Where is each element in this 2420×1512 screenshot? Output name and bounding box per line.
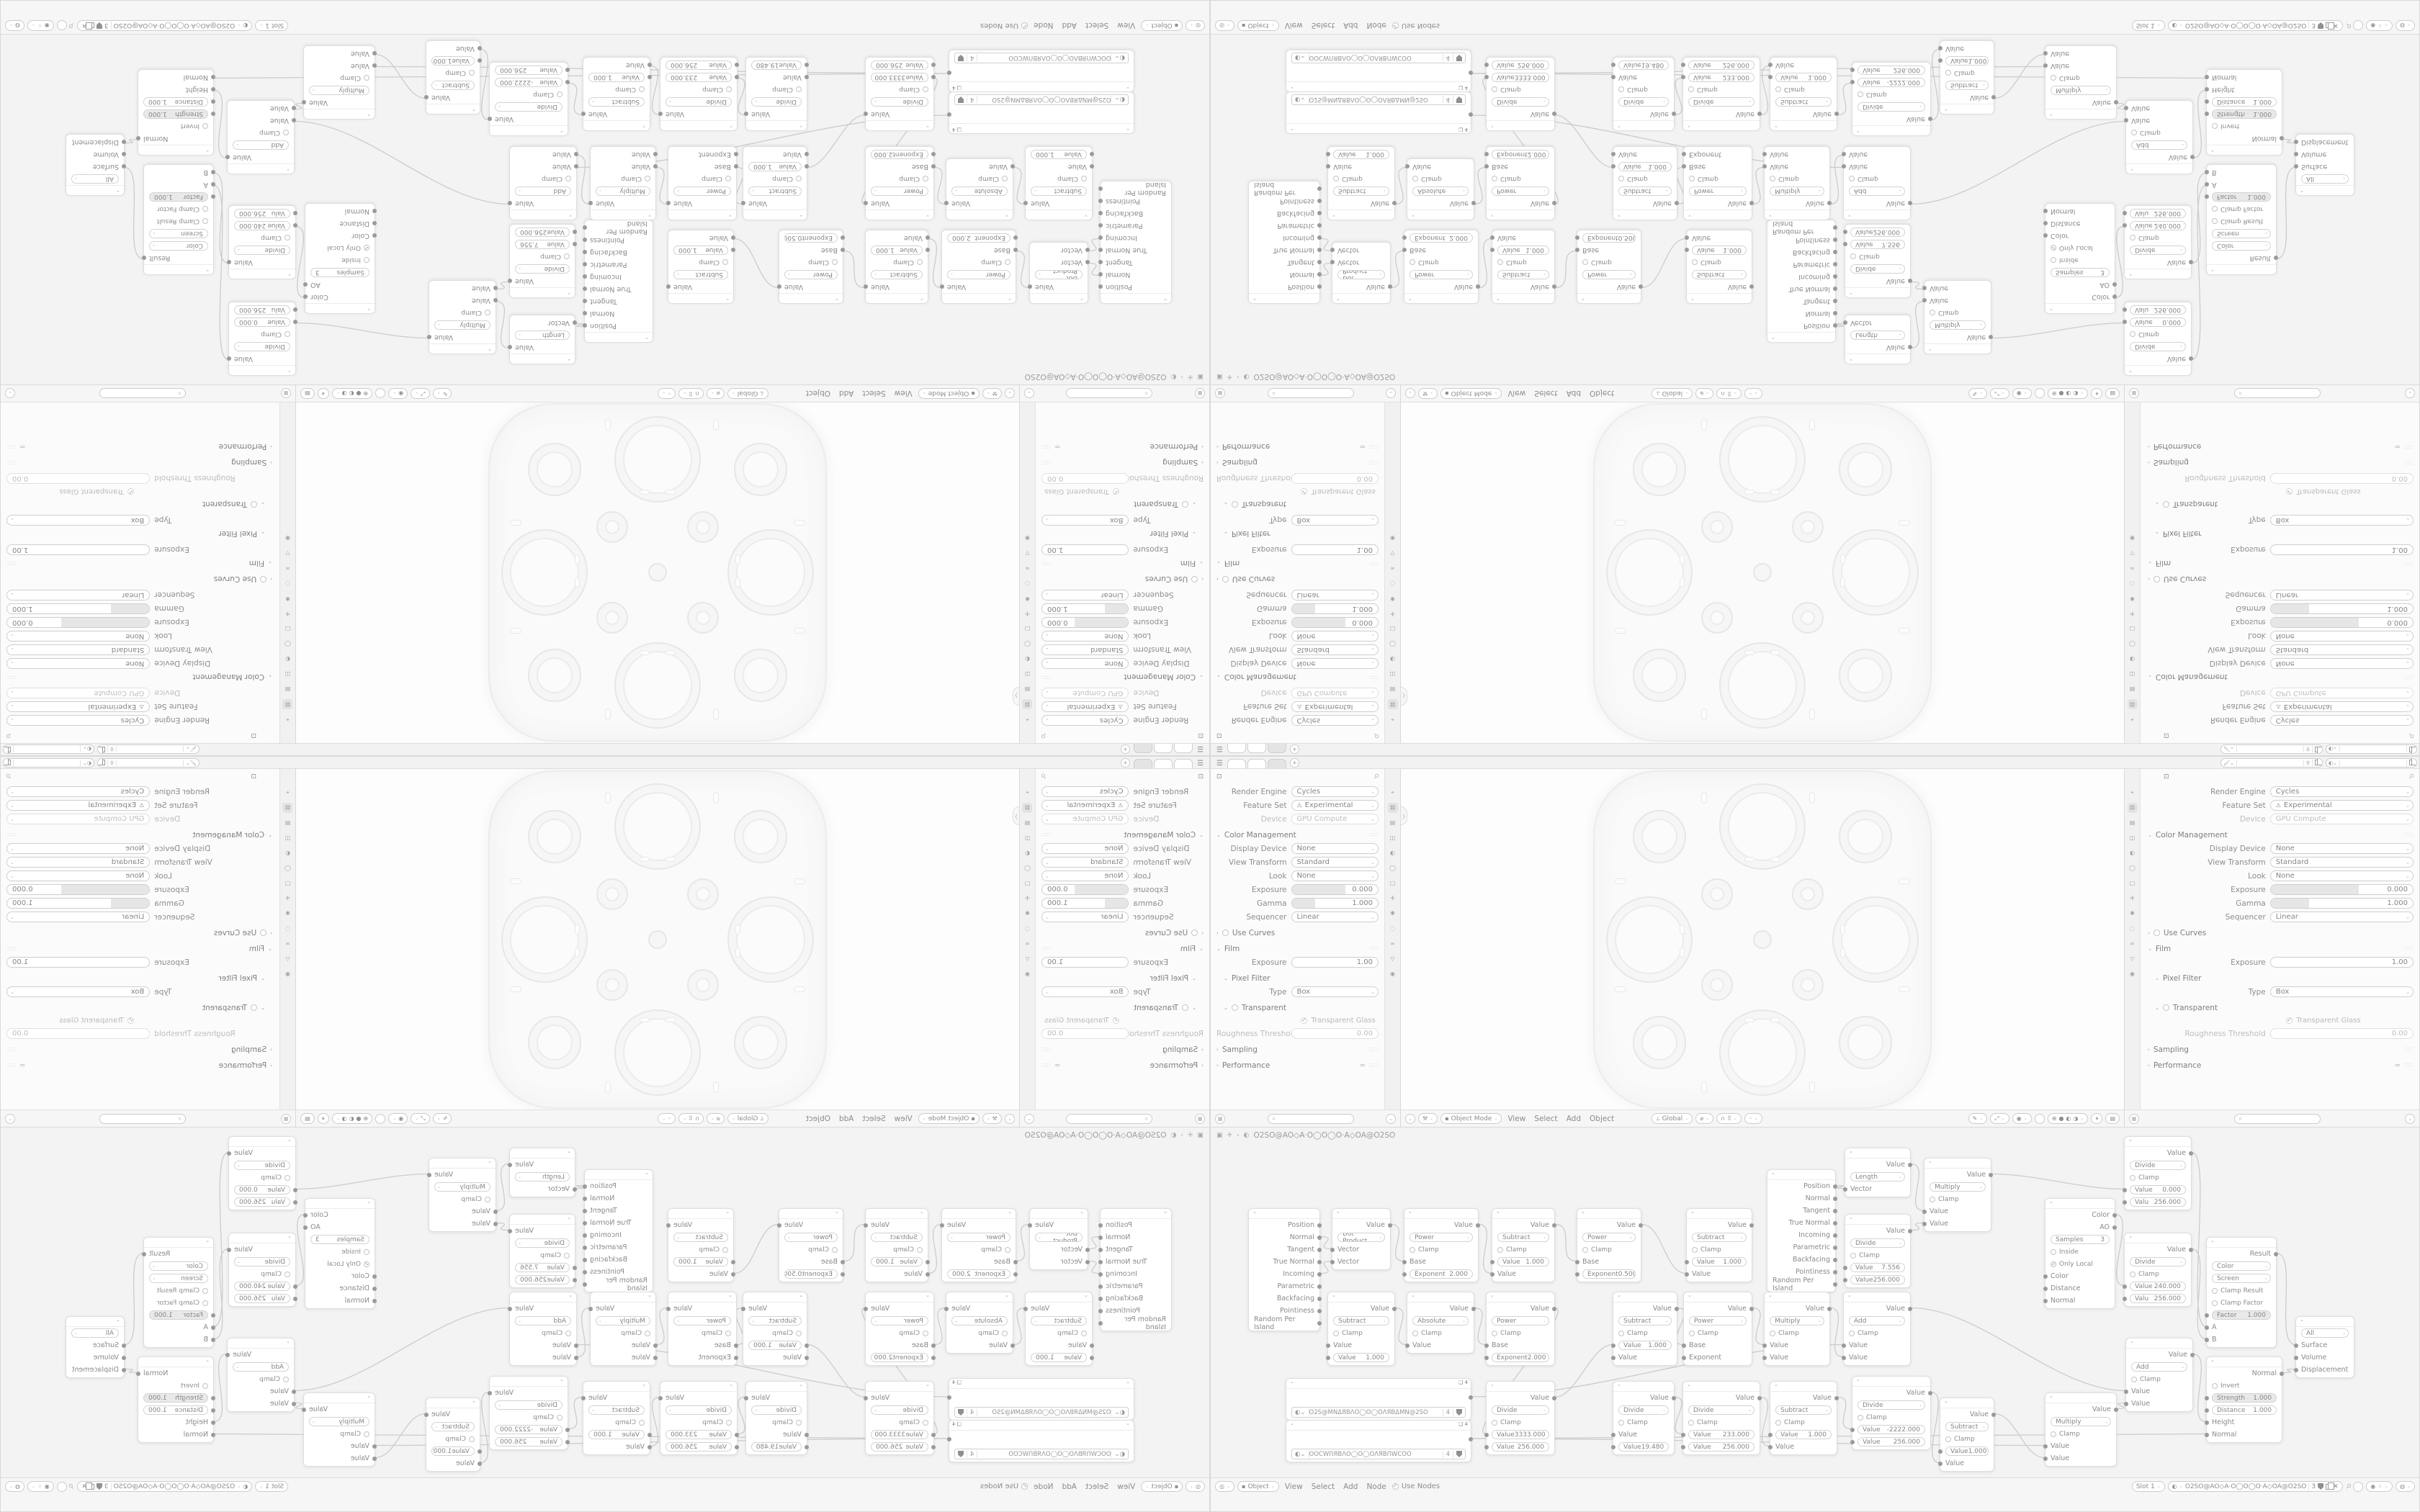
- overlays-toggle-button[interactable]: ◉⌄: [388, 388, 408, 399]
- gizmo-toggle-button[interactable]: ⤢⌄: [1990, 1113, 2009, 1124]
- input-socket[interactable]: [647, 1445, 652, 1449]
- snap-target-button[interactable]: ⌀⌄: [1695, 1113, 1713, 1124]
- proportional-edit-button[interactable]: ◦⌄: [658, 1113, 676, 1124]
- node-checkbox[interactable]: [564, 254, 570, 260]
- input-exposure[interactable]: 0.000: [1291, 884, 1379, 895]
- input-socket[interactable]: [292, 119, 296, 123]
- node-operation-select[interactable]: Add⌄: [515, 1316, 571, 1326]
- node-checkbox[interactable]: [832, 1247, 838, 1253]
- user-count-badge[interactable]: 4: [967, 96, 977, 104]
- search-input[interactable]: ⌕: [2234, 1114, 2321, 1124]
- output-socket[interactable]: [583, 1197, 587, 1201]
- input-socket[interactable]: [1681, 76, 1685, 80]
- snap-toggle-empty[interactable]: [57, 21, 67, 31]
- workspace-tab-active[interactable]: [1134, 744, 1152, 753]
- node-value-field[interactable]: Valu256.000: [234, 1197, 290, 1207]
- node-checkbox[interactable]: [1492, 87, 1497, 93]
- node-math[interactable]: ValueDivide⌄ClampValue240.000Valu256.000: [2124, 205, 2192, 279]
- output-socket[interactable]: [2112, 295, 2117, 300]
- node-bump[interactable]: NormalInvertStrength1.000Distance1.000He…: [138, 1356, 214, 1443]
- node-header[interactable]: [1844, 1292, 1910, 1302]
- props-scene-icon[interactable]: ◐: [2128, 848, 2138, 858]
- node-operation-select[interactable]: Divide⌄: [2130, 246, 2186, 255]
- node-header[interactable]: [946, 1292, 1013, 1302]
- node-checkbox[interactable]: [1497, 1247, 1503, 1253]
- node-checkbox[interactable]: [1412, 1331, 1418, 1336]
- output-socket[interactable]: [741, 1307, 745, 1311]
- viewport-3d[interactable]: ❭ ⌄ ⚒⌄ ▪Object Mode⌄ View Select Add Obj…: [1401, 769, 2124, 1127]
- node-math[interactable]: ValueSubtract⌄ClampValueValue1.000: [1025, 146, 1093, 220]
- use-nodes-checkbox[interactable]: [1392, 1483, 1399, 1490]
- output-socket[interactable]: [142, 256, 146, 261]
- input-roughness-threshold[interactable]: 0.00: [2270, 473, 2414, 484]
- output-socket[interactable]: [1834, 1396, 1839, 1400]
- output-socket[interactable]: [227, 1151, 231, 1156]
- props-scene-icon[interactable]: ◐: [1388, 848, 1398, 858]
- node-math[interactable]: ValueDivide⌄ClampValue-2222.000Value256.…: [489, 62, 568, 136]
- section-film[interactable]: ⌄Film∷∷: [2142, 557, 2419, 570]
- input-socket[interactable]: [478, 1449, 482, 1454]
- node-math[interactable]: ValueDivide⌄ClampValue3333.000Value256.0…: [865, 1381, 934, 1455]
- node-header[interactable]: [229, 269, 295, 279]
- select-display-device[interactable]: None⌄: [6, 843, 150, 854]
- viewport-canvas[interactable]: ❭: [296, 769, 1019, 1110]
- select-view-transform[interactable]: Standard⌄: [2270, 644, 2414, 655]
- select-look[interactable]: None⌄: [1041, 870, 1129, 881]
- node-value-field[interactable]: Value233.000: [665, 73, 732, 82]
- pause-render-button[interactable]: ⏸: [318, 1113, 329, 1124]
- props-data-icon[interactable]: ▽: [283, 954, 293, 964]
- node-math[interactable]: ValueDivide⌄ClampValue0.000Valu256.000: [228, 1136, 296, 1210]
- section-use-curves[interactable]: ›Use Curves: [1036, 926, 1209, 940]
- search-input[interactable]: ⌕: [1067, 1114, 1153, 1124]
- input-socket[interactable]: [2043, 222, 2048, 226]
- node-header[interactable]: [942, 293, 1016, 303]
- section-sampling[interactable]: ›Sampling∷∷: [1036, 1043, 1209, 1056]
- menu-icon[interactable]: ☰: [1197, 760, 1204, 768]
- node-node-group[interactable]: ❑ 4◐⌄O2S@MNΔЯBΛO◯O◯OΛЯBΔMN@2SO4: [949, 91, 1134, 134]
- input-socket[interactable]: [731, 236, 735, 240]
- node-value-field[interactable]: Exponent2.000: [1492, 1353, 1549, 1362]
- input-socket[interactable]: [1922, 1210, 1927, 1214]
- section-checkbox[interactable]: [2154, 930, 2160, 936]
- output-socket[interactable]: [1834, 112, 1839, 117]
- section-transparent[interactable]: ⌄Transparent: [1211, 498, 1384, 511]
- node-header[interactable]: [2045, 1199, 2115, 1209]
- node-math[interactable]: ValueDivide⌄ClampValueValue19.480: [745, 57, 807, 131]
- node-header[interactable]: ❑ 4: [1286, 1421, 1471, 1431]
- copy-icon[interactable]: [4, 746, 14, 753]
- orientation-select[interactable]: ⟂Global⌄: [727, 1113, 768, 1124]
- node-header[interactable]: [2045, 303, 2115, 313]
- props-particles-icon[interactable]: ✱: [1388, 593, 1398, 603]
- node-checkbox[interactable]: [2131, 130, 2137, 136]
- editor-chevron-button[interactable]: ⌄: [1405, 389, 1415, 399]
- select-device[interactable]: GPU Compute⌄: [1041, 688, 1129, 698]
- section-use-curves[interactable]: ›Use Curves: [1036, 572, 1209, 586]
- node-header[interactable]: [2296, 1317, 2354, 1327]
- input-gamma[interactable]: 1.000: [1291, 603, 1379, 614]
- material-datablock[interactable]: ◐⌄ O2SO@AO◇A·O◯O◯O·A◇OA@O2SO 3 ✕: [2168, 20, 2343, 31]
- node-math[interactable]: ValueSubtract⌄ClampValueValue1.000: [1327, 1292, 1395, 1366]
- output-socket[interactable]: [588, 202, 593, 206]
- node-value-field[interactable]: Value1.000: [1775, 73, 1832, 82]
- node-value-field[interactable]: Value-2222.000: [1857, 1425, 1925, 1434]
- output-socket[interactable]: [508, 279, 512, 284]
- output-socket[interactable]: [1552, 112, 1556, 117]
- input-socket[interactable]: [734, 153, 738, 157]
- output-socket[interactable]: [1098, 187, 1103, 192]
- pin-icon[interactable]: ⚲: [68, 22, 76, 30]
- input-socket[interactable]: [1842, 153, 1846, 157]
- node-math[interactable]: ValueMultiply⌄ClampValueValue: [429, 280, 496, 354]
- section-checkbox[interactable]: [2163, 1004, 2169, 1011]
- menu-object[interactable]: Object: [803, 1115, 833, 1123]
- node-header[interactable]: [510, 210, 576, 220]
- node-value-field[interactable]: Exponent2.000: [1410, 233, 1473, 243]
- section-transparent[interactable]: ⌄Transparent: [2142, 1001, 2419, 1014]
- output-socket[interactable]: [1317, 1260, 1322, 1264]
- node-operation-select[interactable]: Subtract⌄: [871, 270, 923, 279]
- node-header[interactable]: [229, 365, 295, 375]
- use-nodes-checkbox[interactable]: [1021, 1483, 1028, 1490]
- node-checkbox[interactable]: [284, 235, 290, 241]
- snap-magnet-button[interactable]: ∩⠿⌄: [1716, 1113, 1742, 1124]
- node-checkbox[interactable]: [2212, 1288, 2218, 1294]
- output-socket[interactable]: [583, 275, 587, 279]
- output-socket[interactable]: [744, 1396, 748, 1400]
- view-layer-field[interactable]: [14, 759, 80, 767]
- node-math[interactable]: ValueDivide⌄ClampValue-2222.000Value256.…: [1852, 1376, 1931, 1450]
- node-math[interactable]: ValueMultiply⌄ClampValueValue: [590, 1292, 656, 1366]
- section-use-curves[interactable]: ›Use Curves: [1, 572, 278, 586]
- node-header[interactable]: [2125, 269, 2191, 279]
- node-operation-select[interactable]: Divide⌄: [1618, 1405, 1669, 1415]
- node-value-field[interactable]: Exponent0.500: [784, 1269, 838, 1279]
- output-socket[interactable]: [1098, 236, 1103, 240]
- menu-node[interactable]: Node: [1031, 22, 1056, 30]
- input-roughness-threshold[interactable]: 0.00: [1291, 473, 1379, 484]
- input-socket[interactable]: [122, 165, 126, 169]
- output-socket[interactable]: [1749, 1223, 1754, 1228]
- node-math[interactable]: ValueMultiply⌄ClampValueValue: [1764, 1292, 1830, 1366]
- output-socket[interactable]: [1098, 1321, 1103, 1326]
- node-math[interactable]: ValuePower⌄ClampBaseExponent2.000: [1404, 230, 1479, 304]
- node-header[interactable]: [228, 163, 294, 174]
- node-header[interactable]: [1328, 210, 1394, 220]
- output-socket[interactable]: [1827, 1307, 1832, 1311]
- node-math[interactable]: ValuePower⌄ClampBaseExponent0.500: [1577, 230, 1641, 304]
- snap-magnet-button[interactable]: ∩⠿⌄: [1716, 388, 1742, 399]
- output-socket[interactable]: [777, 1223, 781, 1228]
- pause-render-button[interactable]: ⏸: [318, 388, 329, 399]
- select-device[interactable]: GPU Compute⌄: [1291, 688, 1379, 698]
- select-display-device[interactable]: None⌄: [1041, 843, 1129, 854]
- node-value-field[interactable]: Value0.000: [2130, 1185, 2186, 1194]
- section-color-management[interactable]: ⌄Color Management∷∷: [1, 670, 278, 684]
- output-socket[interactable]: [1469, 1437, 1473, 1441]
- node-operation-select[interactable]: Divide⌄: [2130, 1257, 2186, 1266]
- material-datablock[interactable]: ◐⌄ O2SO@AO◇A·O◯O◯O·A◇OA@O2SO 3 ✕: [77, 20, 252, 31]
- output-socket[interactable]: [2112, 1225, 2117, 1230]
- input-socket[interactable]: [1330, 1260, 1335, 1264]
- node-operation-select[interactable]: Divide⌄: [1618, 97, 1669, 107]
- output-socket[interactable]: [1833, 1233, 1837, 1238]
- node-value-field[interactable]: Value1.000: [1333, 150, 1389, 159]
- select-look[interactable]: None⌄: [1291, 870, 1379, 881]
- node-math[interactable]: ValueDivide⌄ClampValue0.000Valu256.000: [2124, 1136, 2192, 1210]
- section-checkbox[interactable]: [260, 576, 266, 582]
- node-checkbox[interactable]: [469, 71, 475, 76]
- node-operation-select[interactable]: Divide⌄: [234, 342, 290, 351]
- output-socket[interactable]: [227, 1248, 231, 1252]
- output-socket[interactable]: [583, 1209, 587, 1213]
- input-socket[interactable]: [1085, 261, 1090, 265]
- node-node-group[interactable]: ❑ 4◐⌄O2S@MNΔЯBΛO◯O◯OΛЯBΔMN@2SO4: [1286, 1378, 1471, 1421]
- node-checkbox[interactable]: [2130, 1175, 2136, 1181]
- input-socket[interactable]: [1850, 1440, 1855, 1444]
- input-socket[interactable]: [1681, 63, 1685, 68]
- node-header[interactable]: [1852, 125, 1930, 135]
- output-socket[interactable]: [947, 71, 951, 75]
- proportional-edit-button[interactable]: ◦⌄: [1744, 1113, 1762, 1124]
- viewport-canvas[interactable]: ❭: [1401, 402, 2124, 743]
- node-header[interactable]: [1767, 1170, 1835, 1180]
- node-header[interactable]: [144, 264, 213, 274]
- node-header[interactable]: ❑ 4: [949, 1379, 1134, 1389]
- input-socket[interactable]: [574, 1344, 578, 1348]
- output-socket[interactable]: [583, 238, 587, 243]
- input-socket[interactable]: [565, 1428, 570, 1432]
- use-nodes-checkbox[interactable]: [1021, 22, 1028, 29]
- select-feature-set[interactable]: ⚠Experimental⌄: [1291, 701, 1379, 712]
- input-socket[interactable]: [2205, 1396, 2209, 1400]
- node-value-field[interactable]: Valu256.000: [234, 305, 290, 315]
- node-checkbox[interactable]: [1081, 176, 1087, 182]
- node-value-field[interactable]: Value0.000: [2130, 318, 2186, 327]
- node-header[interactable]: [510, 1292, 576, 1302]
- options-chevron-button[interactable]: ⌄: [2405, 389, 2415, 399]
- input-socket[interactable]: [1402, 248, 1407, 253]
- node-math[interactable]: ValuePower⌄ClampBaseExponent: [668, 146, 737, 220]
- output-socket[interactable]: [2280, 1372, 2284, 1376]
- node-operation-select[interactable]: Divide⌄: [1857, 102, 1925, 112]
- node-operation-select[interactable]: Subtract⌄: [1692, 1233, 1747, 1242]
- input-gamma[interactable]: 1.000: [2270, 898, 2414, 909]
- output-socket[interactable]: [583, 226, 587, 230]
- node-header[interactable]: [2125, 1233, 2191, 1243]
- node-header[interactable]: [1328, 1292, 1394, 1302]
- select-sequencer[interactable]: Linear⌄: [1041, 590, 1129, 600]
- output-socket[interactable]: [1833, 1209, 1837, 1213]
- input-socket[interactable]: [931, 1445, 936, 1449]
- input-socket[interactable]: [1768, 1445, 1773, 1449]
- props-world-icon[interactable]: ◯: [283, 639, 293, 649]
- node-checkbox[interactable]: [202, 1300, 208, 1306]
- overlays-toggle-button[interactable]: ◉⌄: [2012, 1113, 2032, 1124]
- node-math[interactable]: ValueSubtract⌄ClampValue1.000Value: [1940, 1398, 1994, 1472]
- section-film[interactable]: ⌄Film∷∷: [1211, 557, 1384, 570]
- select-render-engine[interactable]: Cycles⌄: [1291, 715, 1379, 726]
- options-chevron-button[interactable]: ⌄: [2405, 1114, 2415, 1124]
- node-value-field[interactable]: Value256.000: [1850, 228, 1905, 237]
- select-device[interactable]: GPU Compute⌄: [2270, 688, 2414, 698]
- section-checkbox[interactable]: [251, 1004, 257, 1011]
- checkbox-transparent-glass[interactable]: Transparent Glass: [1, 485, 278, 498]
- output-socket[interactable]: [1908, 1163, 1912, 1167]
- node-checkbox[interactable]: [1850, 254, 1856, 260]
- input-socket[interactable]: [1938, 1449, 1942, 1454]
- snap-toggle-empty[interactable]: [2353, 1482, 2363, 1492]
- node-checkbox[interactable]: [1618, 1420, 1624, 1426]
- input-socket[interactable]: [372, 222, 377, 226]
- node-checkbox[interactable]: [1005, 260, 1010, 266]
- node-node-group[interactable]: ❑ 4◐⌄O2S@MNΔЯBΛO◯O◯OΛЯBΔMN@2SO4: [949, 1378, 1134, 1421]
- view-layer-selector[interactable]: ◐⌄: [2326, 758, 2417, 768]
- output-socket[interactable]: [427, 1173, 431, 1177]
- node-geometry[interactable]: PositionNormalTangentTrue NormalIncoming…: [1100, 1208, 1172, 1331]
- editor-chevron-button[interactable]: ⌄: [1405, 1114, 1415, 1124]
- search-input[interactable]: ⌕: [1268, 1114, 1354, 1124]
- node-checkbox[interactable]: [284, 332, 290, 338]
- input-socket[interactable]: [2043, 1457, 2048, 1461]
- select-view-transform[interactable]: Standard⌄: [1041, 644, 1129, 655]
- output-socket[interactable]: [1675, 202, 1679, 206]
- snap-target-button[interactable]: ⌀⌄: [707, 1113, 725, 1124]
- input-socket[interactable]: [293, 1200, 297, 1205]
- input-socket[interactable]: [2205, 171, 2209, 175]
- checkbox-transparent-glass[interactable]: Transparent Glass: [2142, 485, 2419, 498]
- node-header[interactable]: [1487, 1292, 1554, 1302]
- node-checkbox[interactable]: [1582, 1247, 1588, 1253]
- node-checkbox[interactable]: [725, 1331, 731, 1336]
- node-header[interactable]: [779, 1209, 843, 1219]
- input-socket[interactable]: [1575, 1260, 1579, 1264]
- output-socket[interactable]: [2114, 101, 2118, 105]
- node-math[interactable]: ValuePower⌄ClampBaseExponent2.000: [1486, 1292, 1555, 1366]
- node-value-field[interactable]: Value256.000: [1688, 60, 1754, 70]
- select-render-engine[interactable]: Cycles⌄: [1041, 786, 1129, 797]
- output-socket[interactable]: [583, 1246, 587, 1250]
- node-header[interactable]: ❑ 4: [1286, 123, 1471, 133]
- node-math[interactable]: ValueSubtract⌄ClampValue1.000Value: [583, 57, 650, 131]
- section-performance[interactable]: ›Performance≔∷∷: [2142, 1058, 2419, 1072]
- node-checkbox[interactable]: [726, 1420, 732, 1426]
- node-operation-select[interactable]: Power⌄: [1582, 1233, 1636, 1242]
- node-math[interactable]: ValueDivide⌄ClampValue240.000Valu256.000: [228, 205, 296, 279]
- node-operation-select[interactable]: Multiply⌄: [309, 1417, 369, 1426]
- node-math[interactable]: ValueDivide⌄ClampValue240.000Valu256.000: [2124, 1233, 2192, 1307]
- node-math[interactable]: ValueDivide⌄ClampValue0.000Valu256.000: [228, 302, 296, 376]
- props-world-icon[interactable]: ◯: [1388, 863, 1398, 873]
- props-view-layer-icon[interactable]: ◫: [283, 833, 293, 843]
- props-scene-icon[interactable]: ◐: [2128, 654, 2138, 664]
- node-header[interactable]: [426, 1398, 480, 1408]
- input-socket[interactable]: [731, 1260, 735, 1264]
- node-value-field[interactable]: Value256.000: [871, 1442, 928, 1452]
- node-checkbox[interactable]: [1618, 87, 1624, 93]
- annotate-tool-button[interactable]: ✎⌄: [1968, 388, 1988, 399]
- node-bump[interactable]: NormalInvertStrength1.000Distance1.000He…: [2206, 69, 2282, 156]
- node-header[interactable]: [1852, 1377, 1930, 1387]
- section-sampling[interactable]: ›Sampling∷∷: [2142, 1043, 2419, 1056]
- node-header[interactable]: ❑ 4: [949, 81, 1134, 91]
- select-sequencer[interactable]: Linear⌄: [1291, 590, 1379, 600]
- node-math[interactable]: ValueDivide⌄ClampValue3333.000Value256.0…: [865, 57, 934, 131]
- output-socket[interactable]: [1098, 212, 1103, 216]
- output-socket[interactable]: [583, 1221, 587, 1225]
- pin-icon[interactable]: ⚲: [68, 1482, 76, 1491]
- select-render-engine[interactable]: Cycles⌄: [2270, 786, 2414, 797]
- copy-icon[interactable]: [2406, 760, 2416, 767]
- section-checkbox[interactable]: [1222, 930, 1229, 936]
- props-constraint-icon[interactable]: ∞: [2128, 939, 2138, 949]
- node-operation-select[interactable]: Length⌄: [515, 1172, 570, 1182]
- output-socket[interactable]: [1552, 202, 1556, 206]
- viewport-canvas[interactable]: ❭: [1401, 769, 2124, 1110]
- node-operation-select[interactable]: All⌄: [2301, 1328, 2349, 1338]
- snapping-options-button[interactable]: ◉⁘⌄: [2366, 1481, 2393, 1492]
- section-performance[interactable]: ›Performance≔∷∷: [1211, 1058, 1384, 1072]
- node-operation-select[interactable]: Subtract⌄: [1333, 186, 1389, 196]
- node-checkbox[interactable]: [645, 176, 650, 182]
- material-slot-select[interactable]: Slot 1⌄: [2132, 20, 2165, 31]
- xray-toggle-button[interactable]: [375, 1114, 385, 1124]
- editor-type-button[interactable]: ▦: [281, 389, 291, 399]
- node-operation-select[interactable]: Add⌄: [2131, 1362, 2187, 1372]
- input-socket[interactable]: [1922, 287, 1927, 291]
- checkbox-transparent-glass[interactable]: Transparent Glass: [2142, 1014, 2419, 1027]
- output-socket[interactable]: [581, 112, 586, 117]
- material-slot-select[interactable]: Slot 1⌄: [2132, 1481, 2165, 1492]
- node-operation-select[interactable]: Divide⌄: [234, 246, 290, 255]
- input-socket[interactable]: [1681, 1433, 1685, 1437]
- render-options-button[interactable]: ▤: [300, 1113, 315, 1124]
- node-operation-select[interactable]: Dot Product⌄: [1337, 270, 1385, 279]
- select-render-engine[interactable]: Cycles⌄: [1291, 786, 1379, 797]
- node-header[interactable]: [1026, 1292, 1092, 1302]
- input-socket[interactable]: [211, 1408, 215, 1413]
- node-operation-select[interactable]: Add⌄: [2131, 140, 2187, 150]
- input-socket[interactable]: [805, 1445, 809, 1449]
- input-socket[interactable]: [1850, 68, 1855, 73]
- node-math[interactable]: ValueSubtract⌄ClampValue1.000Value: [426, 40, 480, 114]
- node-operation-select[interactable]: Add⌄: [1849, 1316, 1905, 1326]
- node-math[interactable]: ValueAdd⌄ClampValueValue: [227, 1338, 295, 1412]
- section-checkbox[interactable]: [1232, 1004, 1238, 1011]
- node-checkbox[interactable]: [364, 258, 369, 264]
- props-tool-icon[interactable]: ⌖: [1388, 788, 1398, 798]
- section-sampling[interactable]: ›Sampling∷∷: [1211, 456, 1384, 469]
- input-socket[interactable]: [493, 287, 498, 291]
- node-value-field[interactable]: Valu256.000: [2130, 305, 2186, 315]
- input-socket[interactable]: [372, 52, 377, 56]
- section-sampling[interactable]: ›Sampling∷∷: [1, 1043, 278, 1056]
- output-socket[interactable]: [1639, 1223, 1643, 1228]
- props-particles-icon[interactable]: ✱: [1388, 909, 1398, 919]
- editor-type-select[interactable]: ⚒⌄: [1418, 388, 1438, 399]
- node-header[interactable]: [1687, 293, 1752, 303]
- input-socket[interactable]: [653, 165, 658, 169]
- menu-view[interactable]: View: [1114, 22, 1138, 30]
- output-socket[interactable]: [1317, 1248, 1322, 1252]
- props-world-icon[interactable]: ◯: [2128, 639, 2138, 649]
- node-checkbox[interactable]: [565, 1331, 571, 1336]
- node-math[interactable]: ValueSubtract⌄ClampValueValue1.000: [1025, 1292, 1093, 1366]
- props-output-icon[interactable]: ▤: [1023, 818, 1033, 828]
- node-value-field[interactable]: Exponent2.000: [1492, 150, 1549, 159]
- node-operation-select[interactable]: All⌄: [71, 174, 119, 184]
